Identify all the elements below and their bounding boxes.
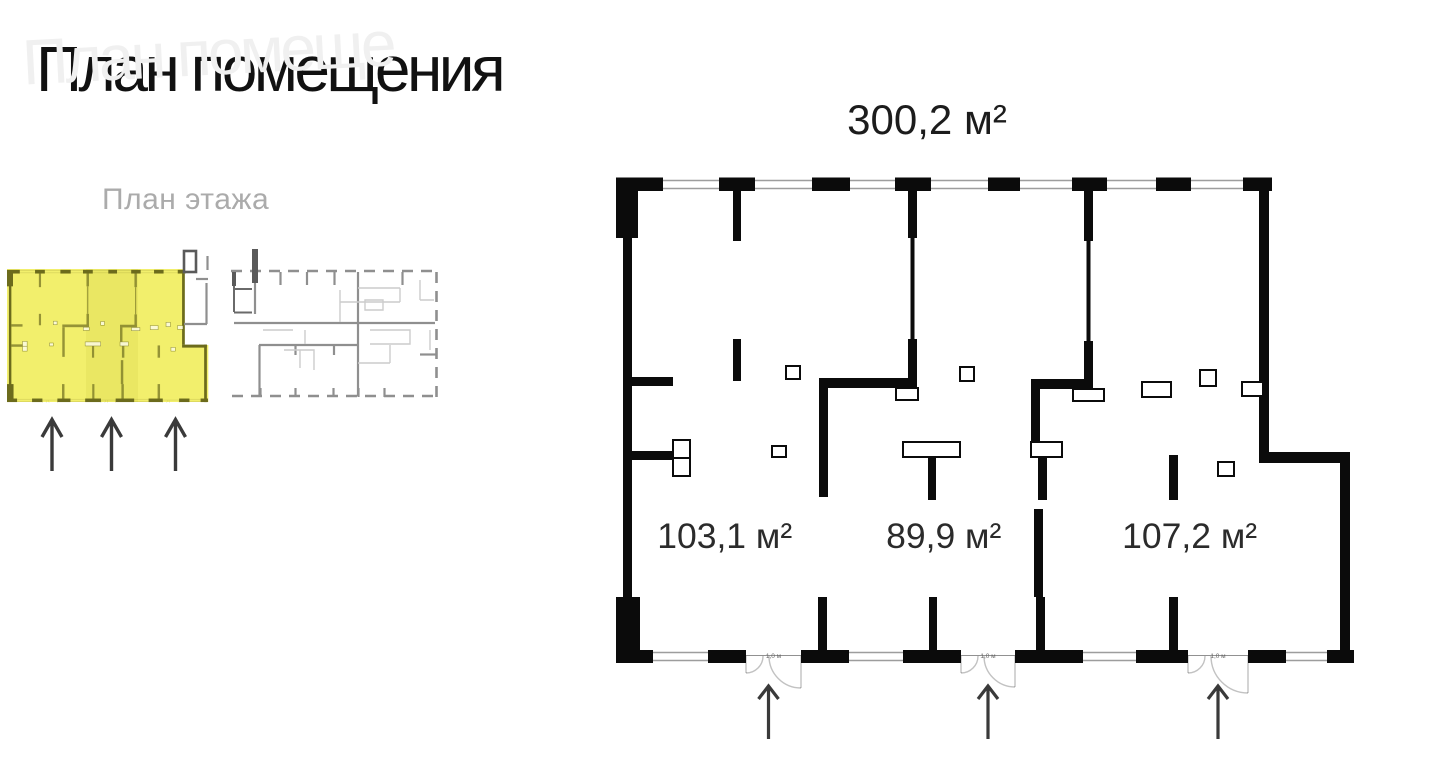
svg-text:89,9 м²: 89,9 м² xyxy=(886,516,1001,556)
svg-text:План этажа: План этажа xyxy=(102,183,269,216)
svg-text:1,0 м: 1,0 м xyxy=(1210,653,1226,660)
svg-text:103,1 м²: 103,1 м² xyxy=(657,516,792,556)
svg-text:1,0 м: 1,0 м xyxy=(980,653,996,660)
svg-text:300,2 м²: 300,2 м² xyxy=(847,96,1007,143)
svg-text:107,2 м²: 107,2 м² xyxy=(1122,516,1257,556)
svg-text:1,0 м: 1,0 м xyxy=(766,653,782,660)
